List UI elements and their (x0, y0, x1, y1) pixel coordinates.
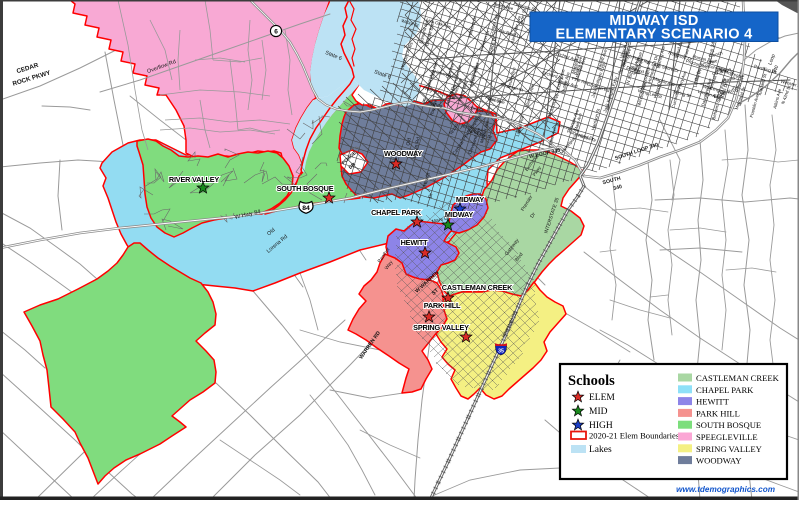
svg-text:CASTLEMAN CREEK: CASTLEMAN CREEK (442, 283, 513, 292)
svg-text:HEWITT: HEWITT (696, 397, 730, 407)
svg-text:PARK HILL: PARK HILL (424, 301, 461, 310)
svg-text:MID: MID (589, 407, 608, 417)
svg-text:6: 6 (274, 29, 278, 36)
svg-text:35: 35 (498, 348, 504, 354)
svg-text:SOUTH BOSQUE: SOUTH BOSQUE (696, 420, 761, 430)
svg-text:Lakes: Lakes (589, 445, 612, 455)
svg-text:SOUTH BOSQUE: SOUTH BOSQUE (277, 184, 334, 193)
svg-text:CHAPEL PARK: CHAPEL PARK (696, 385, 754, 395)
svg-text:Schools: Schools (568, 373, 615, 389)
svg-text:CHAPEL PARK: CHAPEL PARK (371, 208, 422, 217)
svg-text:WOODWAY: WOODWAY (696, 456, 742, 466)
svg-text:RIVER VALLEY: RIVER VALLEY (169, 175, 220, 184)
svg-text:SPRING VALLEY: SPRING VALLEY (696, 444, 762, 454)
svg-text:SPEEGLEVILLE: SPEEGLEVILLE (696, 432, 758, 442)
svg-text:2020-21 Elem Boundaries: 2020-21 Elem Boundaries (589, 431, 680, 441)
svg-text:HEWITT: HEWITT (401, 238, 429, 247)
svg-text:SPRING VALLEY: SPRING VALLEY (413, 323, 469, 332)
svg-text:CASTLEMAN CREEK: CASTLEMAN CREEK (696, 373, 780, 383)
svg-text:84: 84 (302, 205, 310, 212)
svg-text:PARK HILL: PARK HILL (696, 408, 740, 418)
svg-text:ELEM: ELEM (589, 393, 615, 403)
svg-text:ELEMENTARY SCENARIO 4: ELEMENTARY SCENARIO 4 (556, 27, 753, 43)
svg-text:www.tdemographics.com: www.tdemographics.com (676, 485, 775, 494)
svg-text:HIGH: HIGH (589, 421, 613, 431)
